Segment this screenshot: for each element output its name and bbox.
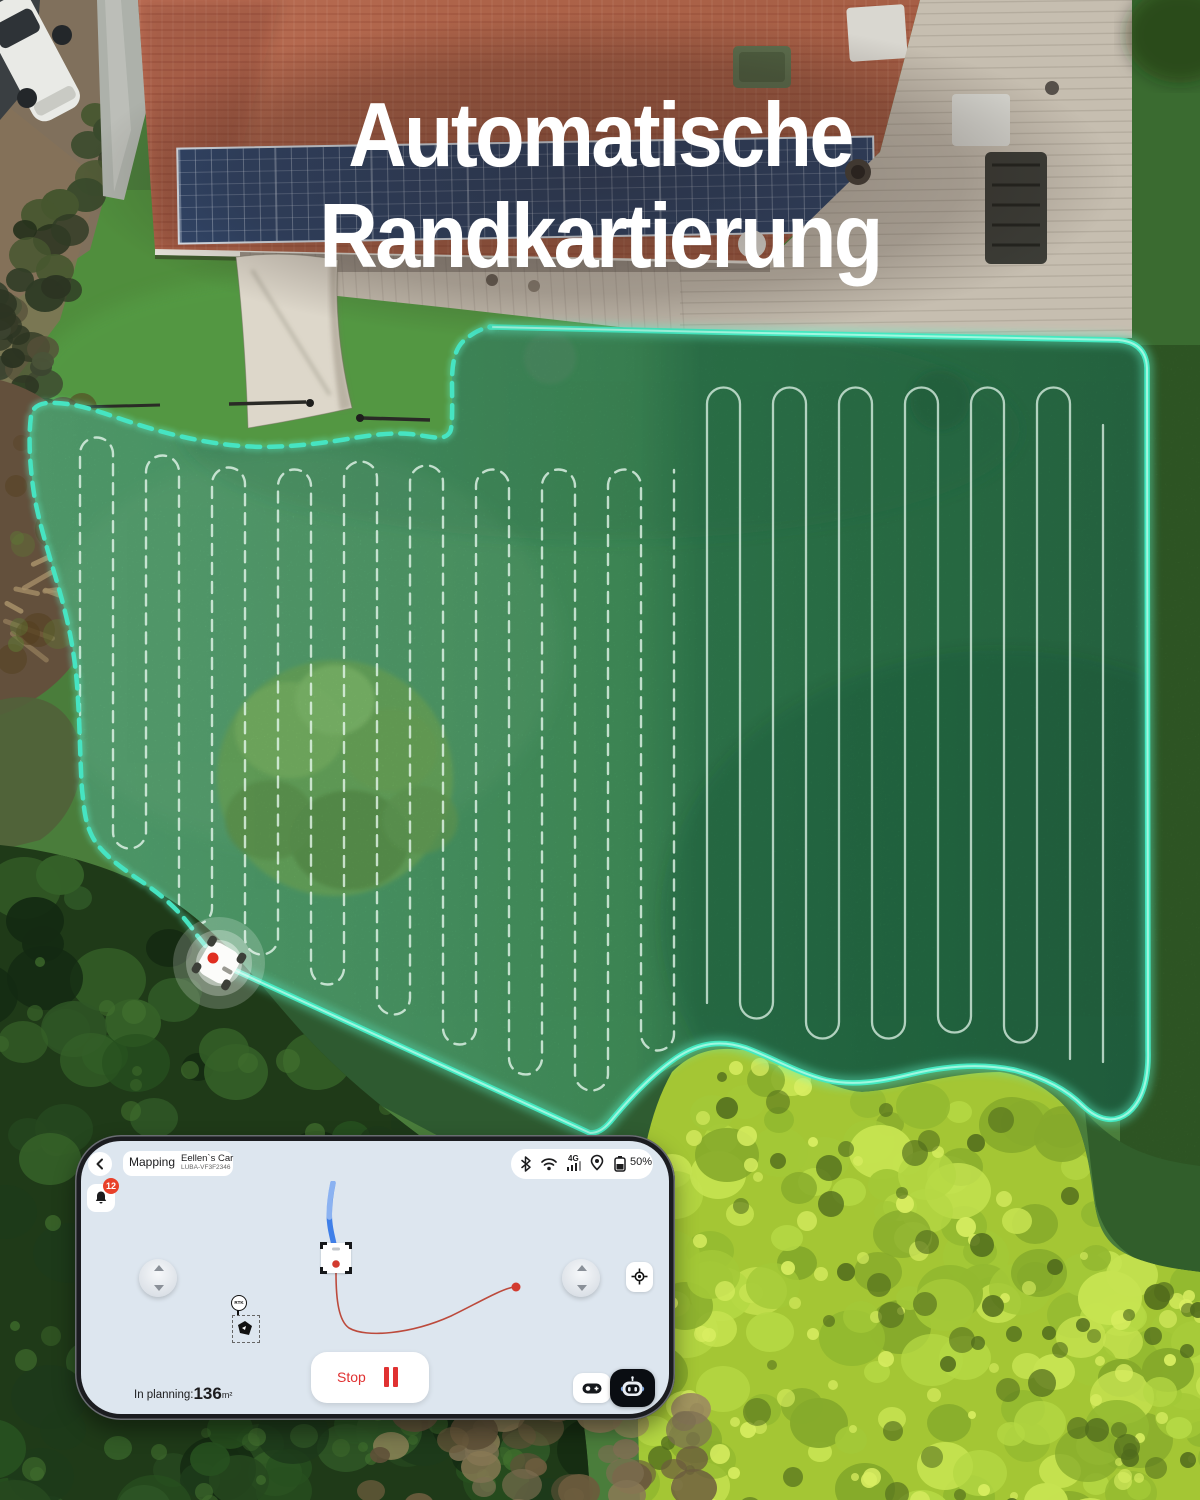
svg-text:4G: 4G — [568, 1154, 579, 1163]
